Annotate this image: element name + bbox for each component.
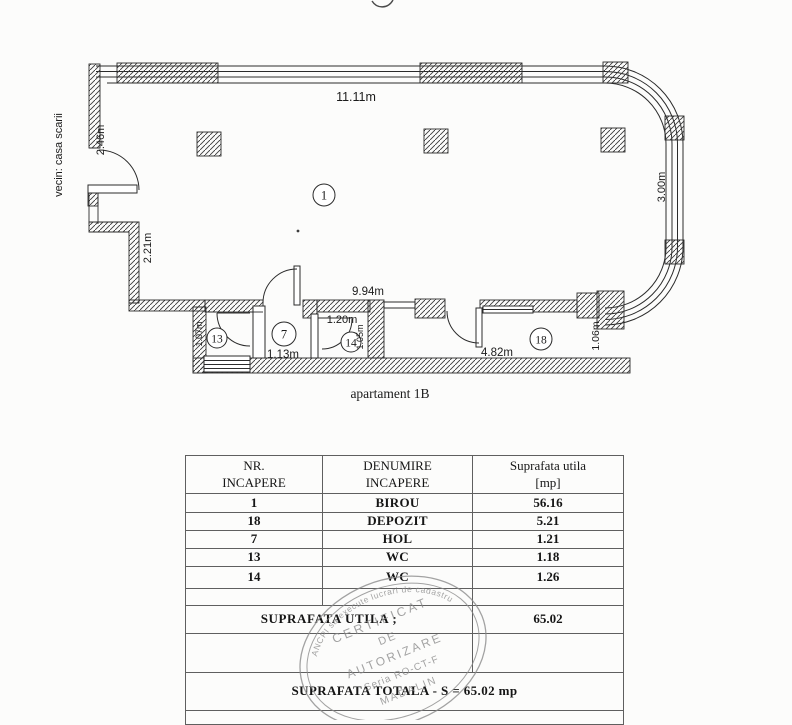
scanned-document-page: 1 7 13 14 18 11.11m 2.46m 2.21m 9.94m 1.… [0,0,792,720]
table-row: 7 HOL 1.21 [186,531,624,549]
cell-room-name: BIROU [323,494,473,513]
header-line: INCAPERE [186,475,322,491]
cell-room-nr: 7 [186,531,323,549]
empty-cell [186,711,624,725]
room-marker-7: 7 [281,328,287,342]
thin-wall-depozit [384,302,415,308]
table-empty-row [186,589,624,606]
table-row: 14 WC 1.26 [186,567,624,589]
entry-stub-wall [88,185,137,193]
dim-1-07: 1.07m [194,321,204,346]
pen-squiggle-mark [372,0,393,7]
cell-room-area: 1.21 [473,531,624,549]
area-table: NR. INCAPERE DENUMIRE INCAPERE Suprafata… [185,455,624,725]
cell-room-nr: 1 [186,494,323,513]
table-header-row: NR. INCAPERE DENUMIRE INCAPERE Suprafata… [186,456,624,494]
room-marker-13: 13 [211,334,223,346]
empty-cell [323,589,473,606]
cell-room-nr: 18 [186,513,323,531]
header-line: DENUMIRE [323,458,472,474]
table-empty-row [186,634,624,673]
window-band [96,66,683,325]
ink-dot [297,230,300,233]
total-label: SUPRAFATA TOTALA - S = 65.02 mp [186,673,624,711]
door-arc-depozit [447,311,479,343]
table-partial-row [186,711,624,725]
dim-1-06: 1.06m [590,321,602,350]
header-line: INCAPERE [323,475,472,491]
dim-2-21: 2.21m [142,233,154,264]
cell-room-area: 56.16 [473,494,624,513]
dim-2-46: 2.46m [95,125,107,156]
subtotal-value: 65.02 [473,606,624,634]
cell-room-name: WC [323,549,473,567]
empty-cell [473,589,624,606]
cell-room-name: DEPOZIT [323,513,473,531]
header-line: Suprafata utila [473,458,623,474]
table-row: 1 BIROU 56.16 [186,494,624,513]
dim-9-94: 9.94m [352,286,384,298]
table-subtotal-row: SUPRAFATA UTILA ; 65.02 [186,606,624,634]
dim-3-00: 3.00m [656,172,668,203]
header-line: [mp] [473,475,623,491]
table-row: 13 WC 1.18 [186,549,624,567]
door-leaf-depozit [476,308,482,347]
cell-room-name: HOL [323,531,473,549]
door-arcs [99,150,479,349]
table-row: 18 DEPOZIT 5.21 [186,513,624,531]
room-marker-18: 18 [535,335,547,347]
cell-room-area: 1.18 [473,549,624,567]
empty-cell [186,634,473,673]
empty-cell [186,589,323,606]
area-table-container: NR. INCAPERE DENUMIRE INCAPERE Suprafata… [185,455,623,720]
header-suprafata-utila: Suprafata utila [mp] [473,456,624,494]
cell-room-name: WC [323,567,473,589]
subtotal-label: SUPRAFATA UTILA ; [186,606,473,634]
cell-room-area: 1.26 [473,567,624,589]
cell-room-nr: 13 [186,549,323,567]
wall-wc13-hol [253,306,265,358]
plan-caption: apartament 1B [300,386,480,402]
cell-room-nr: 14 [186,567,323,589]
dim-1-13: 1.13m [267,349,299,361]
dim-1-05: 1.05m [355,324,365,349]
dim-11-11: 11.11m [336,90,376,104]
thin-walls-and-fixtures [88,185,533,372]
header-nr-incapere: NR. INCAPERE [186,456,323,494]
dim-1-20: 1.20m [327,314,358,326]
table-total-row: SUPRAFATA TOTALA - S = 65.02 mp [186,673,624,711]
door-arc-hol [263,269,297,303]
door-leaf-hol [294,266,300,305]
floor-plan-drawing: 1 7 13 14 18 11.11m 2.46m 2.21m 9.94m 1.… [0,0,792,445]
header-line: NR. [186,458,322,474]
cell-room-area: 5.21 [473,513,624,531]
dim-4-82: 4.82m [481,347,513,359]
neighbor-label: vecin: casa scarii [53,113,65,197]
grille-wc13 [204,356,250,372]
wall-hol-wc14 [311,314,318,358]
room-marker-1: 1 [321,189,327,203]
header-denumire-incapere: DENUMIRE INCAPERE [323,456,473,494]
empty-cell [473,634,624,673]
